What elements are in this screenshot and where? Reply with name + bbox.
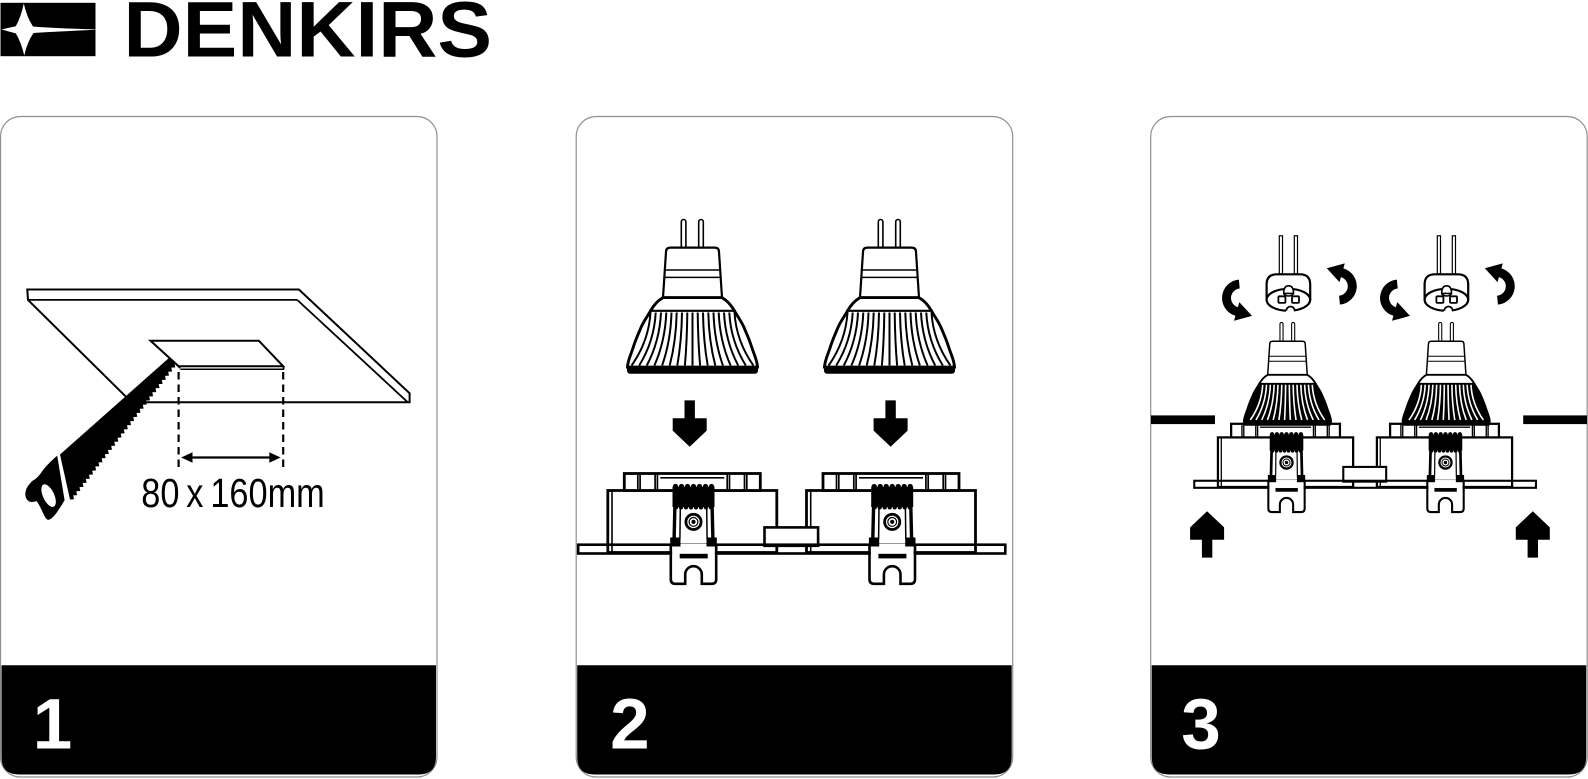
svg-text:80 x 160mm: 80 x 160mm xyxy=(141,470,325,516)
svg-text:3: 3 xyxy=(1181,686,1221,765)
svg-text:DENKIRS: DENKIRS xyxy=(124,0,493,74)
svg-text:1: 1 xyxy=(33,686,73,765)
svg-text:2: 2 xyxy=(610,686,650,765)
